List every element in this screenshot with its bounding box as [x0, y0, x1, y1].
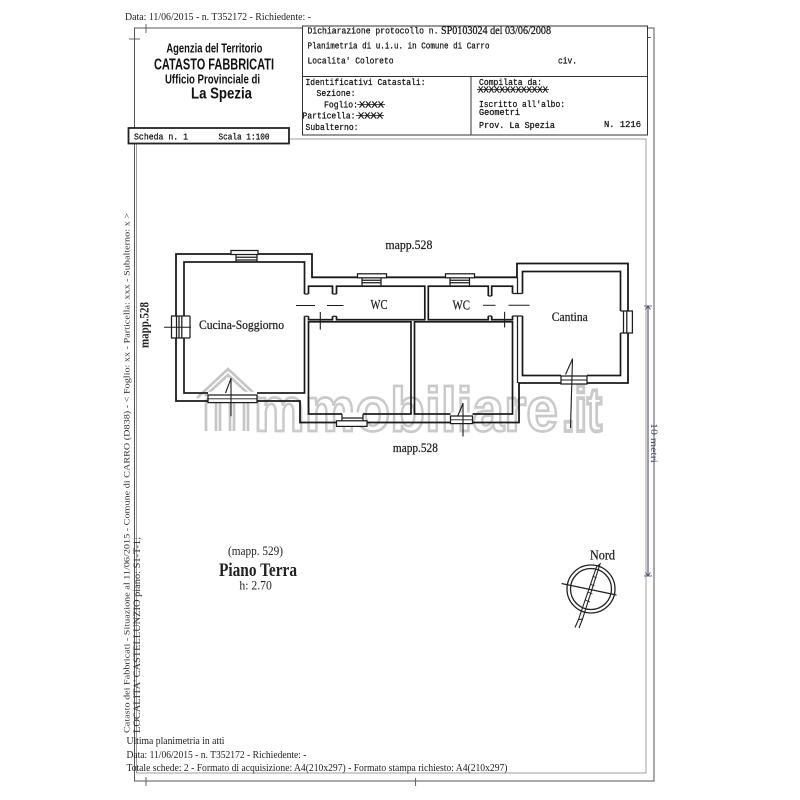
svg-text:Data: 11/06/2015 - n. T352172: Data: 11/06/2015 - n. T352172 - Richiede…	[125, 11, 311, 23]
svg-text:Identificativi Catastali:: Identificativi Catastali:	[306, 78, 426, 88]
svg-text:Scala 1:100: Scala 1:100	[219, 133, 270, 143]
svg-text:Prov. La Spezia: Prov. La Spezia	[479, 121, 556, 131]
svg-text:WC: WC	[453, 299, 471, 314]
svg-text:civ.: civ.	[558, 57, 577, 67]
svg-text:Subalterno:: Subalterno:	[306, 123, 359, 133]
svg-text:Totale schede: 2 - Formato di: Totale schede: 2 - Formato di acquisizio…	[127, 763, 508, 774]
svg-text:XXXX: XXXX	[359, 101, 385, 111]
svg-text:h: 2.70: h: 2.70	[239, 578, 272, 593]
svg-text:Scheda n. 1: Scheda n. 1	[134, 133, 188, 143]
svg-text:(mapp. 529): (mapp. 529)	[228, 543, 283, 558]
svg-text:Agenzia del Territorio: Agenzia del Territorio	[166, 41, 262, 56]
svg-text:Dichiarazione protocollo n.: Dichiarazione protocollo n.	[308, 27, 439, 37]
svg-text:mapp.528: mapp.528	[137, 302, 152, 348]
svg-text:Catasto dei Fabbricati - Situa: Catasto dei Fabbricati - Situazione al 1…	[122, 213, 132, 733]
svg-text:Ufficio Provinciale di: Ufficio Provinciale di	[165, 72, 260, 87]
svg-text:Foglio:: Foglio:	[324, 101, 358, 111]
svg-text:XXXX: XXXX	[358, 112, 384, 122]
svg-text:10 metri: 10 metri	[648, 423, 658, 463]
svg-text:XXXXXXXXXXXXX: XXXXXXXXXXXXX	[478, 86, 549, 96]
svg-text:Planimetria di u.i.u. in Comun: Planimetria di u.i.u. in Comune di Carro	[308, 42, 490, 52]
svg-text:SP0103024 del 03/06/2008: SP0103024 del 03/06/2008	[441, 25, 551, 37]
svg-text:mapp.528: mapp.528	[385, 237, 432, 252]
svg-text:Ultima planimetria in atti: Ultima planimetria in atti	[127, 736, 225, 747]
svg-text:Nord: Nord	[590, 548, 615, 563]
svg-text:Particella:: Particella:	[303, 112, 356, 122]
svg-text:Sezione:: Sezione:	[317, 89, 356, 99]
svg-text:N. 1216: N. 1216	[604, 120, 641, 130]
svg-text:.it: .it	[562, 376, 602, 445]
svg-text:Cucina-Soggiorno: Cucina-Soggiorno	[199, 317, 284, 332]
svg-text:La Spezia: La Spezia	[191, 86, 252, 103]
svg-text:Data: 11/06/2015 - n. T352172: Data: 11/06/2015 - n. T352172 - Richiede…	[127, 750, 307, 761]
svg-text:WC: WC	[371, 298, 388, 313]
svg-text:Geometri: Geometri	[479, 108, 520, 118]
svg-text:Cantina: Cantina	[552, 309, 588, 324]
svg-text:Localita' Coloreto: Localita' Coloreto	[308, 57, 394, 67]
svg-text:mapp.528: mapp.528	[393, 440, 438, 455]
svg-text:LOCALITA' CASTELLUNZIO piano:: LOCALITA' CASTELLUNZIO piano: S1-T-1;	[132, 537, 142, 733]
